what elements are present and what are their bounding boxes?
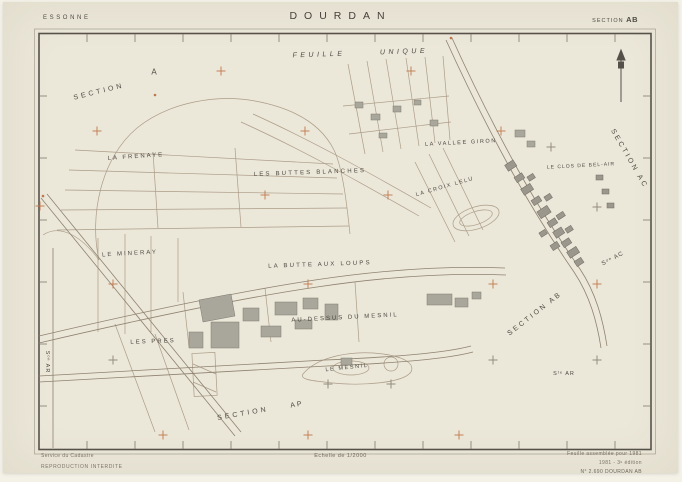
map-linework [43,56,502,432]
north-arrow-icon [617,50,625,102]
sheet-reference-label: N° 2.690 DOURDAN AB [580,469,642,475]
grid-ticks [40,34,650,449]
map-frame [39,34,651,450]
map-roads [39,38,607,448]
survey-dots [42,37,453,198]
map-buildings [189,100,614,365]
edition-number-label: 1981 - 3ᵉ édition [599,460,642,466]
map-canvas [3,2,682,482]
edition-date-label: Feuille assemblée pour 1981 [567,451,642,457]
cadastral-sheet: ESSONNE DOURDAN SECTION AB [3,2,678,473]
copyright-label: REPRODUCTION INTERDITE [41,464,123,470]
